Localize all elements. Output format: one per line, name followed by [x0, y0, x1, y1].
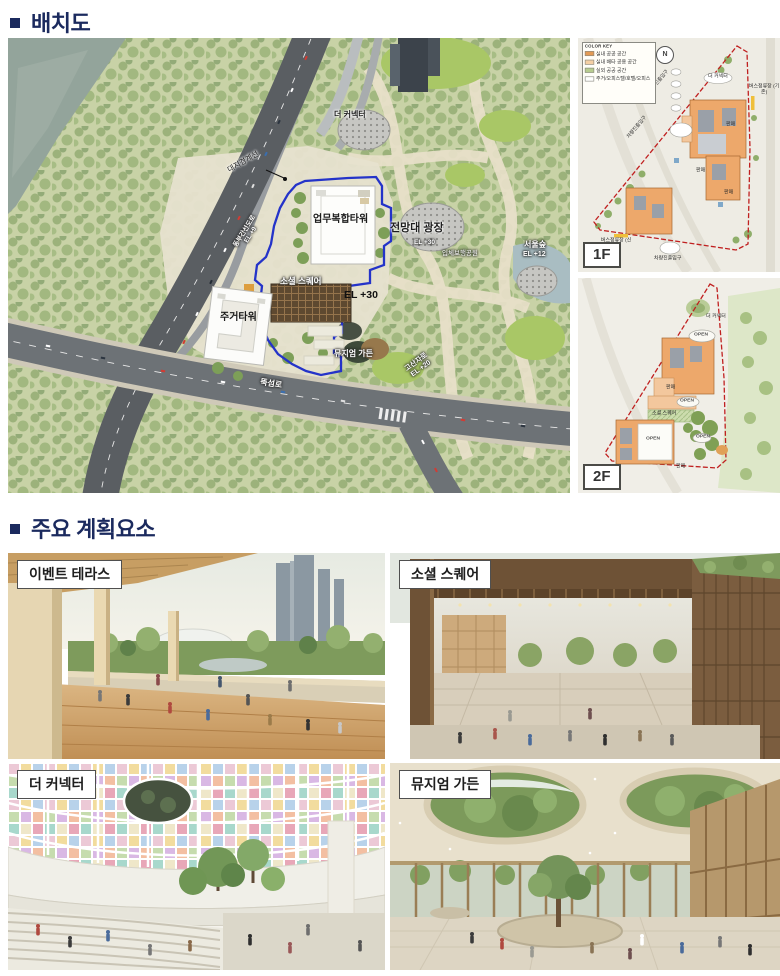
plan-label-open: OPEN — [696, 434, 710, 440]
map-label-seoul-forest-el: EL +12 — [523, 251, 546, 259]
plan-label-retail: 판매 — [724, 190, 733, 196]
photo-label-event-terrace: 이벤트 테라스 — [17, 560, 122, 589]
photo-label-museum-garden: 뮤지엄 가든 — [399, 770, 491, 799]
floor-plan-2f-illustration — [578, 278, 780, 493]
plan-label-retail: 판매 — [676, 464, 685, 470]
photo-museum-garden: 뮤지엄 가든 — [390, 763, 780, 970]
map-label-museum-garden: 뮤지엄 가든 — [334, 350, 373, 359]
plan-label-open: OPEN — [680, 398, 694, 404]
legend-swatch-indoor-public — [585, 51, 594, 56]
plan-label-social-square: 소셜 스퀘어 — [652, 411, 676, 417]
plan-label-retail: 판매 — [696, 168, 705, 174]
legend-label: 실외 공공 공간 — [596, 67, 626, 74]
legend-swatch-indoor-semi — [585, 59, 594, 64]
plan-label-open: OPEN — [646, 436, 660, 442]
site-plan-title: 배치도 — [31, 6, 90, 38]
north-arrow-icon: N — [656, 46, 674, 64]
plan-label-connector: 더 커넥터 — [702, 314, 730, 320]
photo-label-the-connector: 더 커넥터 — [17, 770, 96, 799]
photo-social-square: 소셜 스퀘어 — [390, 553, 780, 759]
legend-title: COLOR KEY — [585, 44, 654, 48]
floor-plan-1f: COLOR KEY 실내 공공 공간 실내 배타 공용 공간 실외 공공 공간 … — [578, 38, 780, 272]
plan-label-open: OPEN — [694, 332, 708, 338]
photo-label-social-square: 소셜 스퀘어 — [399, 560, 491, 589]
bullet-square-icon — [10, 18, 20, 28]
legend-item: 실내 배타 공용 공간 — [585, 59, 654, 66]
plan-label-retail: 판매 — [726, 122, 735, 128]
map-label-observatory-el: EL +30 — [414, 239, 435, 246]
map-label-residential-tower: 주거타워 — [220, 312, 257, 323]
bullet-square-icon — [10, 524, 20, 534]
legend-item: 실내 공공 공간 — [585, 50, 654, 57]
site-plan-illustration — [8, 38, 570, 493]
plan-label-vehicle-entry: 차량진출입구 — [654, 256, 681, 262]
legend-swatch-outdoor-public — [585, 68, 594, 73]
legend-label: 주거/오피스텔/호텔/오피스 — [596, 75, 650, 82]
section-heading-key-elements: 주요 계획요소 — [10, 512, 155, 544]
map-label-site-el: EL +30 — [344, 290, 378, 302]
map-label-pedestrian-park: 입체보행공원 — [442, 250, 478, 257]
plan-label-connector: 더 커넥터 — [704, 74, 732, 80]
photo-the-connector: 더 커넥터 — [8, 763, 385, 970]
legend-label: 실내 공공 공간 — [596, 50, 626, 57]
legend-label: 실내 배타 공용 공간 — [596, 59, 637, 66]
legend-item: 실외 공공 공간 — [585, 67, 654, 74]
plan-label-bus-stop-existing: 버스정류장 (기존) — [748, 84, 780, 95]
photo-event-terrace: 이벤트 테라스 — [8, 553, 385, 759]
key-elements-title: 주요 계획요소 — [31, 512, 155, 544]
floor-tag-2f: 2F — [583, 464, 621, 490]
legend-swatch-residence — [585, 76, 594, 81]
color-key-legend: COLOR KEY 실내 공공 공간 실내 배타 공용 공간 실외 공공 공간 … — [582, 42, 656, 104]
map-label-the-connector: 더 커넥터 — [334, 111, 366, 120]
plan-label-retail: 판매 — [666, 385, 675, 391]
floor-plan-2f: 더 커넥터 OPEN OPEN OPEN OPEN 소셜 스퀘어 판매 판매 2… — [578, 278, 780, 493]
legend-item: 주거/오피스텔/호텔/오피스 — [585, 75, 654, 82]
map-label-seoul-forest: 서울숲 — [524, 241, 546, 250]
floor-tag-1f: 1F — [583, 242, 621, 268]
section-heading-site-plan: 배치도 — [10, 6, 90, 38]
site-plan-image: 더 커넥터 대지경계선 업무복합타워 전망대 광장 EL +30 서울숲 EL … — [8, 38, 570, 493]
map-label-observatory-plaza: 전망대 광장 — [390, 222, 444, 234]
map-label-social-square: 소셜 스퀘어 — [280, 277, 321, 287]
map-label-office-tower: 업무복합타워 — [313, 214, 368, 225]
